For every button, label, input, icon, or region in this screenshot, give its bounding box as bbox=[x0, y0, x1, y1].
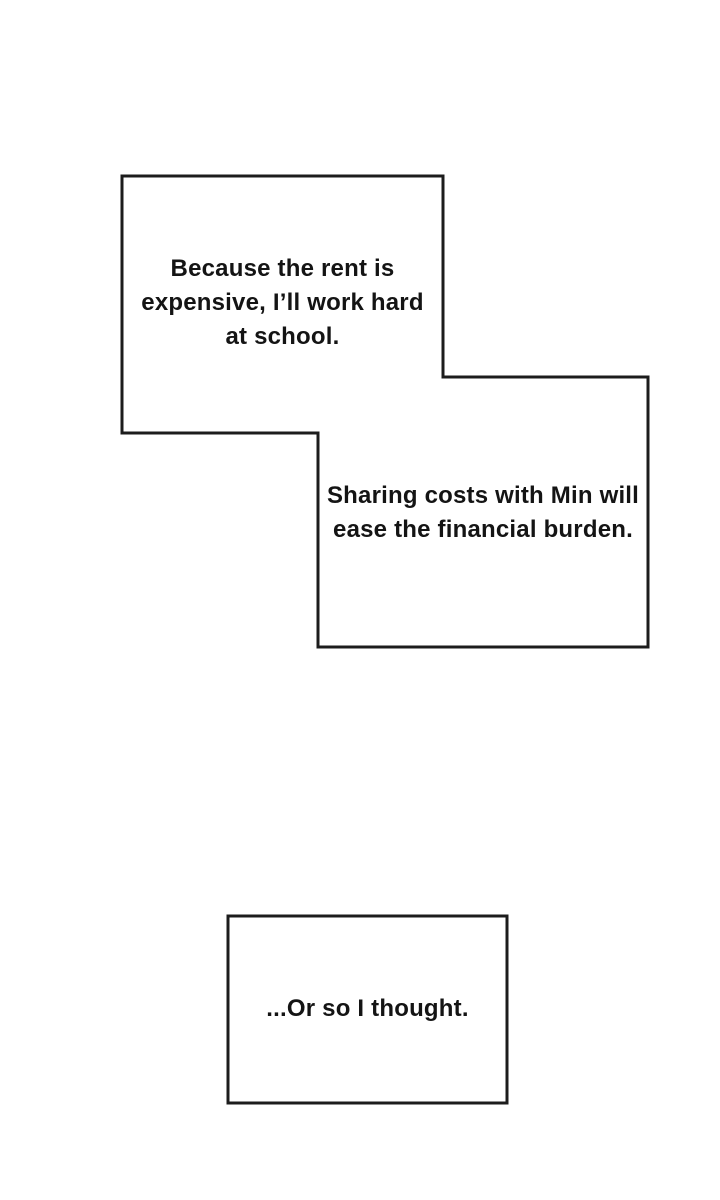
text-line: at school. bbox=[122, 320, 443, 354]
text-line: Sharing costs with Min will bbox=[318, 479, 648, 513]
thought-box-1-text: Because the rent is expensive, I’ll work… bbox=[122, 252, 443, 354]
text-line: ease the financial burden. bbox=[318, 513, 648, 547]
merged-thought-boxes-shape bbox=[122, 176, 648, 647]
text-line: Because the rent is bbox=[122, 252, 443, 286]
text-line: ...Or so I thought. bbox=[228, 992, 507, 1026]
text-line: expensive, I’ll work hard bbox=[122, 286, 443, 320]
thought-box-3-text: ...Or so I thought. bbox=[228, 992, 507, 1026]
comic-page: Because the rent is expensive, I’ll work… bbox=[0, 0, 720, 1200]
thought-box-2-text: Sharing costs with Min will ease the fin… bbox=[318, 479, 648, 547]
